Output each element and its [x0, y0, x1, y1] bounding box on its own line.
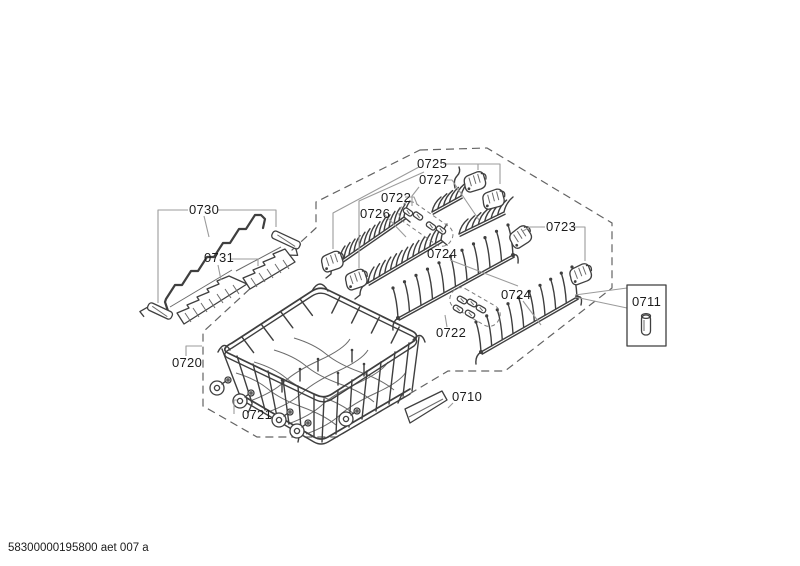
tine-row-element: [487, 316, 492, 346]
tine-row-element: [476, 322, 481, 352]
label-0725: 0725: [417, 156, 447, 171]
tine-row-element: [439, 263, 444, 293]
label-0722-lower: 0722: [436, 325, 466, 340]
tine-row-0724-a: [391, 223, 515, 320]
label-0727: 0727: [419, 172, 449, 187]
label-0731: 0731: [204, 250, 234, 265]
tine-row-element: [485, 238, 490, 268]
tine-row-element: [391, 286, 394, 289]
tine-row-element: [426, 268, 429, 271]
label-0721: 0721: [242, 407, 272, 422]
tine-row-element: [437, 261, 440, 264]
tine-row-element: [561, 273, 566, 303]
tine-row-element: [508, 304, 513, 334]
tine-row-element: [428, 269, 433, 299]
tine-row-element: [560, 272, 563, 275]
rail-bracket-left: [139, 300, 174, 328]
tine-row-element: [472, 242, 475, 245]
tine-row-element: [483, 236, 486, 239]
tine-row-element: [416, 275, 421, 305]
label-0730: 0730: [189, 202, 219, 217]
tine-row-element: [414, 274, 417, 277]
tine-row-element: [551, 279, 556, 309]
label-0711: 0711: [632, 294, 661, 309]
pin-cap: [642, 314, 651, 335]
part-0710-strip: [405, 391, 447, 423]
document-code: 58300000195800 aet 007 a: [8, 542, 149, 554]
tine-row-element: [393, 288, 398, 318]
exploded-parts-diagram: 0730 0731 0720 0721 0722 0726 0727 0725 …: [0, 0, 800, 566]
tine-row-element: [497, 231, 502, 261]
tine-row-element: [403, 280, 406, 283]
tine-row-0724-b: [474, 265, 579, 354]
tine-row-element: [519, 298, 524, 328]
label-0722-upper: 0722: [381, 190, 411, 205]
tine-row-element: [504, 197, 513, 212]
tine-row-element: [540, 285, 545, 315]
label-0720: 0720: [172, 355, 202, 370]
label-0724-lower: 0724: [501, 287, 531, 302]
tine-row-element: [405, 282, 410, 312]
label-0723: 0723: [546, 219, 576, 234]
label-0726: 0726: [360, 206, 390, 221]
part-0723-clips: [509, 225, 593, 286]
tine-row-element: [460, 249, 463, 252]
tine-row-element: [549, 278, 552, 281]
tine-row-element: [506, 223, 509, 226]
label-0724-upper: 0724: [427, 246, 457, 261]
tine-row-element: [506, 302, 509, 305]
page: 0730 0731 0720 0721 0722 0726 0727 0725 …: [0, 0, 800, 566]
tine-row-element: [495, 230, 498, 233]
tine-row-element: [481, 297, 577, 352]
tine-row-element: [339, 217, 404, 262]
tine-row-element: [474, 320, 477, 323]
tine-row-element: [538, 284, 541, 287]
label-0710: 0710: [452, 389, 482, 404]
tine-row-element: [485, 314, 488, 317]
